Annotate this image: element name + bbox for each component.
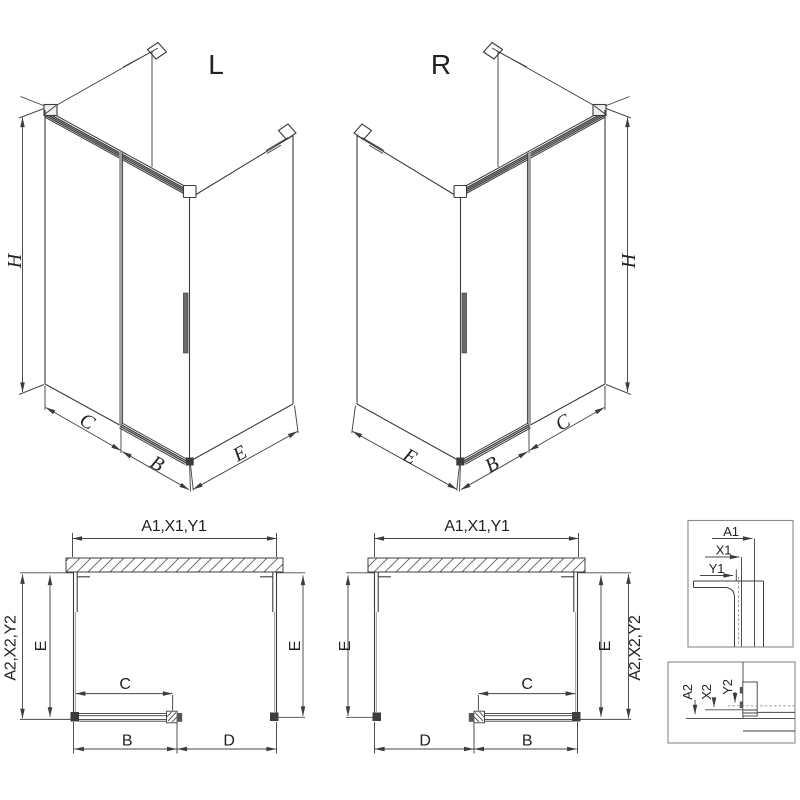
plan-right-dim-e-left: E — [337, 641, 354, 651]
plan-left-dim-a2: A2,X2,Y2 — [3, 615, 20, 681]
iso-left-dim-b: B — [146, 451, 168, 476]
guide-tab-top — [740, 687, 743, 694]
iso-left-dim-c: C — [76, 409, 99, 435]
detail-dim-a2: A2 — [680, 684, 695, 700]
detail-dim-x2: X2 — [699, 684, 714, 700]
detail-dim-y2: Y2 — [720, 679, 735, 695]
detail-a2-box: A2 X2 Y2 — [668, 662, 795, 743]
plan-left-dim-c: C — [119, 676, 130, 693]
iso-right-view — [352, 43, 631, 492]
wall-hatch-left-plan — [66, 558, 283, 572]
plan-left-dim-d: D — [223, 733, 234, 750]
iso-right-title: R — [431, 49, 451, 80]
iso-left-dim-h: H — [4, 252, 26, 269]
plan-left-dim-e-left: E — [33, 641, 50, 651]
iso-right-dim-c: C — [552, 410, 575, 436]
iso-right-dim-b: B — [481, 452, 503, 477]
iso-left-dim-e: E — [229, 441, 251, 467]
iso-left-title: L — [208, 49, 224, 80]
plan-left-dim-a1: A1,X1,Y1 — [141, 518, 207, 535]
plan-right-dim-c: C — [521, 676, 532, 693]
plan-right-dim-d: D — [419, 733, 430, 750]
wall-hatch-right-plan — [368, 558, 585, 572]
detail-a1-box: A1 X1 Y1 — [688, 521, 793, 648]
technical-drawing-page: A1 X1 Y1 A2 X2 Y2 L H C B E R H E B C A1… — [0, 0, 800, 800]
plan-left-dim-b: B — [122, 733, 132, 750]
detail-dim-a1: A1 — [723, 524, 739, 539]
plan-right-dim-a1: A1,X1,Y1 — [444, 518, 510, 535]
plan-left-dim-e-right: E — [287, 641, 304, 651]
iso-right-dim-e: E — [398, 444, 420, 470]
detail-dim-x1: X1 — [716, 543, 732, 558]
iso-left-view — [19, 43, 298, 492]
shower-enclosure-diagram: A1 X1 Y1 A2 X2 Y2 L H C B E R H E B C A1… — [0, 0, 800, 800]
plan-right-dim-b: B — [522, 733, 532, 750]
plan-right-dim-a2: A2,X2,Y2 — [627, 615, 644, 681]
door-guide-section — [743, 682, 757, 716]
guide-tab-bottom — [740, 702, 743, 709]
plan-right-dim-e-right: E — [597, 641, 614, 651]
detail-dim-y1: Y1 — [709, 561, 725, 576]
iso-right-dim-h: H — [618, 252, 640, 269]
wall-profile-section — [694, 581, 764, 647]
